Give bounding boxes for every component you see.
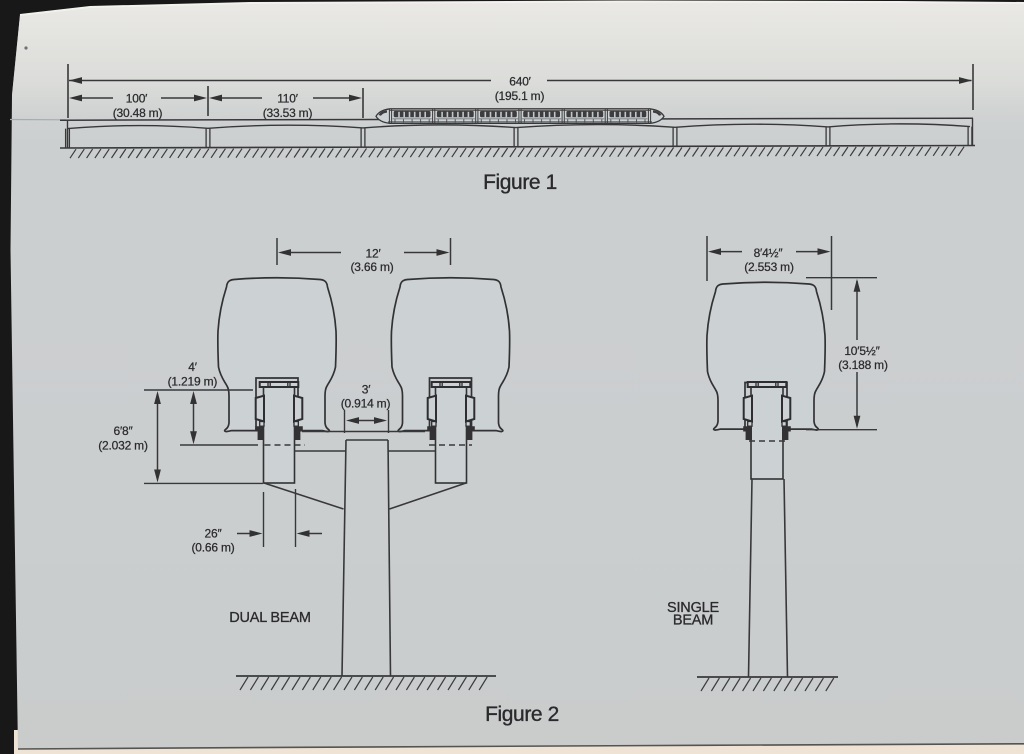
svg-text:(2.032 m): (2.032 m) bbox=[98, 439, 148, 453]
svg-text:4′: 4′ bbox=[188, 360, 197, 374]
svg-text:(30.48 m): (30.48 m) bbox=[113, 106, 163, 120]
svg-text:12′: 12′ bbox=[366, 247, 382, 261]
svg-text:(33.53 m): (33.53 m) bbox=[263, 106, 313, 120]
svg-text:6′8″: 6′8″ bbox=[113, 424, 133, 438]
svg-text:100′: 100′ bbox=[126, 92, 148, 106]
svg-text:(0.914 m): (0.914 m) bbox=[341, 397, 391, 411]
svg-text:(1.219 m): (1.219 m) bbox=[168, 375, 218, 389]
svg-text:3′: 3′ bbox=[362, 383, 371, 397]
svg-text:8′4½″: 8′4½″ bbox=[754, 246, 784, 260]
svg-text:Figure 2: Figure 2 bbox=[485, 703, 559, 726]
svg-text:110′: 110′ bbox=[277, 92, 299, 106]
svg-text:(0.66 m): (0.66 m) bbox=[191, 541, 234, 555]
svg-text:(195.1 m): (195.1 m) bbox=[495, 89, 545, 103]
svg-text:DUAL BEAM: DUAL BEAM bbox=[229, 610, 310, 626]
svg-text:BEAM: BEAM bbox=[673, 613, 713, 629]
svg-text:26″: 26″ bbox=[205, 527, 223, 541]
svg-text:(3.66 m): (3.66 m) bbox=[350, 260, 393, 274]
svg-text:Figure 1: Figure 1 bbox=[483, 171, 557, 194]
svg-text:(3.188 m): (3.188 m) bbox=[838, 358, 888, 372]
svg-text:10′5½″: 10′5½″ bbox=[844, 344, 880, 358]
svg-text:640′: 640′ bbox=[509, 75, 531, 89]
svg-text:(2.553 m): (2.553 m) bbox=[744, 260, 794, 274]
